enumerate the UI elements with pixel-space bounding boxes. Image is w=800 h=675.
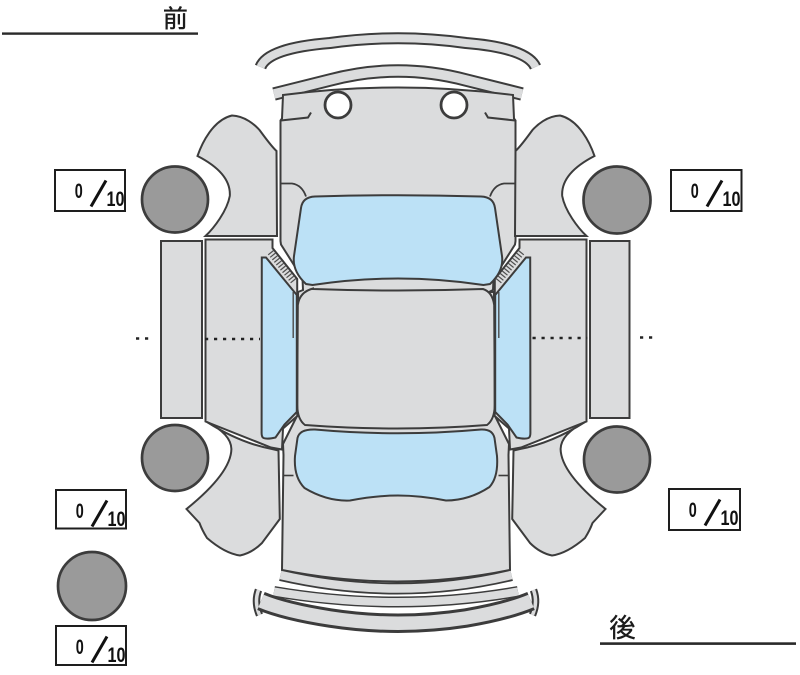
svg-text:0: 0 (76, 499, 84, 523)
svg-text:0: 0 (75, 179, 83, 203)
svg-text:10: 10 (108, 508, 126, 531)
svg-text:10: 10 (723, 188, 741, 211)
svg-text:10: 10 (721, 507, 739, 530)
svg-text:10: 10 (107, 188, 125, 211)
svg-text:10: 10 (108, 644, 126, 667)
svg-text:0: 0 (691, 179, 699, 203)
svg-text:0: 0 (76, 635, 84, 659)
svg-text:0: 0 (689, 498, 697, 522)
